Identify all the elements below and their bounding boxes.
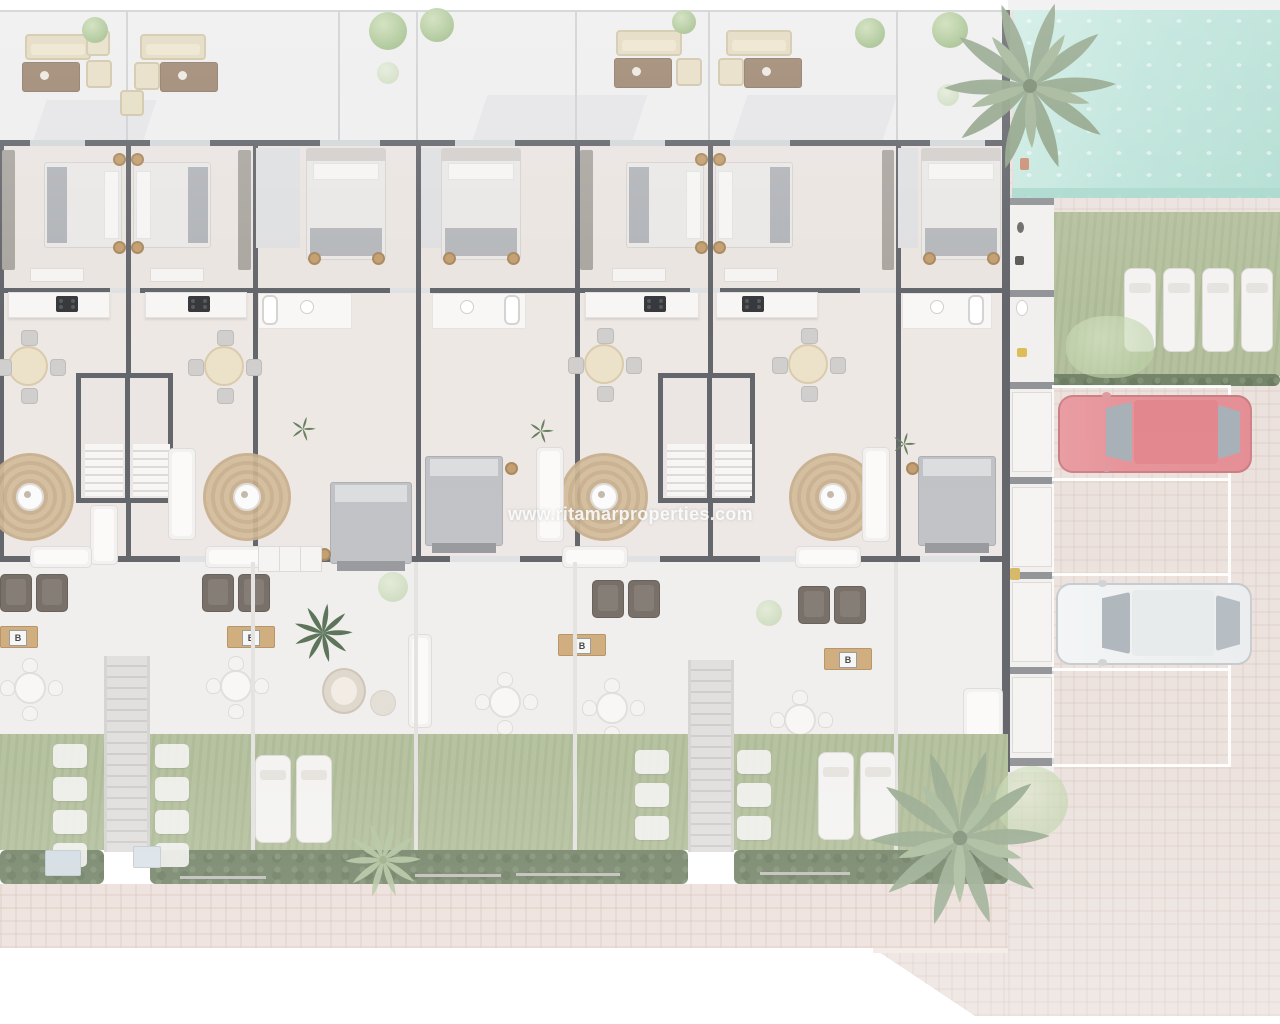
car-rear-window: [1216, 595, 1240, 651]
patio-chair: [48, 680, 63, 696]
pavement-corner: [873, 948, 1008, 1016]
garden-toy: [1017, 348, 1027, 357]
patio-chair: [228, 656, 244, 671]
guest-bed: [918, 456, 996, 546]
car-mirror: [1098, 580, 1107, 587]
bedside-stool: [113, 153, 126, 166]
dining-table: [584, 344, 624, 384]
bottom-margin: [0, 948, 873, 1024]
patio-dining-table: [489, 686, 521, 718]
bedside-stool: [131, 153, 144, 166]
bathtub: [262, 295, 278, 325]
terrace-coffee-table: [744, 58, 802, 88]
bbq-label: B: [845, 655, 852, 665]
palm-tree: [940, 0, 1120, 176]
parking-line: [1052, 385, 1228, 388]
stepping-stone: [53, 744, 87, 768]
terrace-divider: [708, 12, 710, 140]
bedside-stool: [131, 241, 144, 254]
bathroom-sink: [460, 300, 474, 314]
walkway-divider: [1008, 198, 1054, 205]
outdoor-armchair: [36, 574, 68, 612]
stair-treads: [85, 444, 123, 496]
bedside-stool: [987, 252, 1000, 265]
outdoor-armchair: [798, 586, 830, 624]
stepping-stone: [155, 744, 189, 768]
window: [610, 140, 665, 146]
parking-line: [1052, 764, 1228, 767]
window: [455, 140, 515, 146]
kitchen-counter: [716, 292, 818, 318]
terrace-divider: [416, 12, 418, 140]
door-gap: [860, 288, 900, 293]
patio-chair: [254, 678, 269, 694]
dining-chair: [597, 328, 614, 344]
stair-treads: [715, 444, 752, 496]
car-rear-window: [1218, 405, 1240, 459]
bedroom-double-bed: [133, 162, 211, 248]
patio-chair: [604, 678, 620, 693]
staircase: [76, 373, 173, 503]
patio-chair: [22, 658, 38, 673]
dining-chair: [772, 357, 788, 374]
lawn-lounger: [1202, 268, 1234, 352]
bedside-stool: [713, 241, 726, 254]
patio-dining-table: [596, 692, 628, 724]
car-roof: [1134, 400, 1218, 464]
garden-stairs: [104, 656, 150, 852]
dining-chair: [568, 357, 584, 374]
bedside-stool: [113, 241, 126, 254]
outdoor-armchair: [0, 574, 32, 612]
sliding-door: [450, 556, 520, 562]
bbq-box: B: [839, 652, 857, 668]
patio-chair: [475, 694, 490, 710]
dining-chair: [0, 359, 12, 376]
door-gap: [390, 288, 430, 293]
terrace-tree: [672, 10, 696, 34]
side-object: [1015, 256, 1024, 265]
patio-dining-table: [220, 670, 252, 702]
bedroom-double-bed: [441, 148, 521, 260]
bedside-stool: [713, 153, 726, 166]
patio-chair: [0, 680, 15, 696]
dining-chair: [830, 357, 846, 374]
sofa: [168, 448, 196, 540]
parking-line: [1052, 385, 1054, 767]
bedside-stool: [695, 241, 708, 254]
wardrobe: [580, 150, 593, 270]
bedside-stool: [308, 252, 321, 265]
footpath: [0, 884, 1008, 953]
parking-line: [1052, 573, 1228, 576]
sun-lounger: [818, 752, 854, 840]
lawn-bush: [1066, 316, 1154, 378]
terrace-armchair: [718, 58, 744, 86]
bathtub: [504, 295, 520, 325]
window-nook: [898, 148, 918, 248]
hanging-chair: [322, 668, 366, 714]
terrace-sofa: [25, 34, 91, 60]
palm-tree: [866, 744, 1054, 932]
dining-chair: [626, 357, 642, 374]
white-car: [1056, 583, 1252, 665]
patio-chair: [770, 712, 785, 728]
car-mirror: [1102, 465, 1111, 472]
stepping-stone: [737, 783, 771, 807]
lawn-lounger: [1163, 268, 1195, 352]
dining-chair: [188, 359, 204, 376]
bedside-stool: [695, 153, 708, 166]
outdoor-armchair: [202, 574, 234, 612]
parking-line: [1052, 478, 1228, 481]
staircase: [658, 373, 755, 503]
bedside-stool: [507, 252, 520, 265]
terrace-armchair: [120, 90, 144, 116]
sideboard: B: [558, 634, 606, 656]
pillow: [313, 163, 379, 180]
patio-palm-plant: [288, 598, 358, 668]
bbq-box: B: [9, 630, 27, 646]
patio-chair: [22, 706, 38, 721]
terrace-tree: [420, 8, 454, 42]
sideboard: B: [0, 626, 38, 648]
stepping-stone: [635, 816, 669, 840]
sofa: [30, 546, 92, 568]
window: [30, 140, 85, 146]
terrace-tree: [377, 62, 399, 84]
patio-chair: [497, 672, 513, 687]
dining-chair: [50, 359, 66, 376]
closet: [279, 546, 301, 572]
coffee-table: [819, 483, 847, 511]
bathtub: [968, 295, 984, 325]
terrace-coffee-table: [614, 58, 672, 88]
hall-plant: [890, 430, 918, 458]
walkway-divider: [1008, 290, 1054, 297]
stepping-stone: [635, 750, 669, 774]
patio-bush: [756, 600, 782, 626]
garden-toy: [1010, 568, 1020, 580]
garden-palm-bush: [338, 815, 428, 905]
sofa: [862, 447, 890, 542]
patio-chair: [228, 704, 244, 719]
stepping-stone: [53, 810, 87, 834]
bedside-stool: [505, 462, 518, 475]
terrace-armchair: [676, 58, 702, 86]
watermark: www.ritamarproperties.com: [508, 504, 753, 525]
cooktop: [56, 296, 78, 312]
dining-table: [788, 344, 828, 384]
terrace-sofa: [140, 34, 206, 60]
pillow: [448, 163, 514, 180]
window: [150, 140, 210, 146]
dining-chair: [217, 388, 234, 404]
ac-unit: [133, 846, 161, 868]
path-railing: [516, 873, 620, 876]
window-nook: [256, 148, 300, 248]
stair-divider: [125, 378, 130, 498]
coffee-table: [16, 483, 44, 511]
lawn-lounger: [1241, 268, 1273, 352]
stepping-stone: [155, 810, 189, 834]
wardrobe: [2, 150, 15, 270]
dresser: [30, 268, 84, 282]
bedside-stool: [443, 252, 456, 265]
shadow: [473, 95, 648, 140]
stair-treads: [133, 444, 170, 496]
sofa: [795, 546, 861, 568]
side-patio: [1012, 582, 1052, 662]
dining-table: [204, 346, 244, 386]
stair-divider: [707, 378, 712, 498]
stair-treads: [667, 444, 705, 496]
side-basin: [1016, 300, 1028, 316]
bathroom-sink: [300, 300, 314, 314]
terrace-sofa: [726, 30, 792, 56]
bedside-stool: [906, 462, 919, 475]
dining-chair: [801, 328, 818, 344]
garden-stairs: [688, 660, 734, 852]
stepping-stone: [53, 777, 87, 801]
terrace-armchair: [134, 62, 160, 90]
terrace-divider: [338, 12, 340, 140]
pool-waterline: [1012, 188, 1280, 198]
car-mirror: [1102, 392, 1111, 399]
terrace-armchair: [86, 60, 112, 88]
patio-chair: [818, 712, 833, 728]
sofa: [90, 505, 118, 565]
bbq-label: B: [579, 641, 586, 651]
kitchen-counter: [585, 292, 699, 318]
terrace-tree: [82, 17, 108, 43]
bedside-stool: [923, 252, 936, 265]
terrace-coffee-table: [22, 62, 80, 92]
patio-dining-table: [784, 704, 816, 736]
outdoor-armchair: [592, 580, 624, 618]
pouf: [370, 690, 396, 716]
walkway-divider: [1008, 667, 1054, 674]
sliding-door: [920, 556, 980, 562]
dining-chair: [246, 359, 262, 376]
terrace-tree: [369, 12, 407, 50]
walkway-divider: [1008, 477, 1054, 484]
bedroom-double-bed: [715, 162, 793, 248]
side-patio: [1012, 487, 1052, 567]
outdoor-sofa: [408, 634, 432, 728]
window: [320, 140, 380, 146]
patio-chair: [523, 694, 538, 710]
dresser: [150, 268, 204, 282]
path-railing: [760, 872, 850, 875]
dining-chair: [21, 330, 38, 346]
ac-unit: [45, 850, 81, 876]
stepping-stone: [737, 750, 771, 774]
dining-chair: [217, 330, 234, 346]
patio-dining-table: [14, 672, 46, 704]
terrace-coffee-table: [160, 62, 218, 92]
side-patio: [1012, 392, 1052, 472]
car-windshield: [1106, 402, 1132, 462]
hall-plant: [288, 414, 318, 444]
car-windshield: [1102, 592, 1130, 654]
stepping-stone: [155, 777, 189, 801]
sideboard: B: [824, 648, 872, 670]
stepping-stone: [737, 816, 771, 840]
sun-lounger: [255, 755, 291, 843]
sun-lounger: [296, 755, 332, 843]
bedroom-double-bed: [306, 148, 386, 260]
door-gap: [110, 288, 140, 293]
garden-lawn: [0, 734, 1008, 850]
garden-fence: [573, 562, 577, 884]
facade-top-line: [0, 10, 1008, 12]
stepping-stone: [635, 783, 669, 807]
outdoor-armchair: [834, 586, 866, 624]
guest-bed: [330, 482, 412, 564]
outdoor-shower: [1017, 222, 1024, 233]
bedroom-double-bed: [626, 162, 704, 248]
sofa: [536, 447, 564, 542]
patio-chair: [582, 700, 597, 716]
walkway-divider: [1008, 382, 1054, 389]
sofa: [562, 546, 628, 568]
path-railing: [180, 876, 266, 879]
car-roof: [1132, 590, 1214, 656]
terrace-tree: [855, 18, 885, 48]
bedside-stool: [372, 252, 385, 265]
dining-chair: [21, 388, 38, 404]
dresser: [612, 268, 666, 282]
wardrobe: [238, 150, 251, 270]
patio-chair: [630, 700, 645, 716]
cooktop: [188, 296, 210, 312]
wardrobe: [882, 150, 894, 270]
outdoor-armchair: [628, 580, 660, 618]
car-mirror: [1098, 659, 1107, 666]
patio-bush: [378, 572, 408, 602]
dining-chair: [801, 386, 818, 402]
side-patio: [1012, 677, 1052, 753]
cooktop: [742, 296, 764, 312]
shadow: [733, 95, 898, 140]
hall-plant: [526, 416, 556, 446]
cooktop: [644, 296, 666, 312]
patio-chair: [792, 690, 808, 705]
parking-line: [1052, 668, 1228, 671]
bathroom-sink: [930, 300, 944, 314]
window-nook: [421, 148, 441, 248]
patio-chair: [497, 720, 513, 735]
guest-bed: [425, 456, 503, 546]
window: [730, 140, 790, 146]
floor-plan-render: B B B B: [0, 0, 1280, 1024]
patio-chair: [206, 678, 221, 694]
dining-chair: [597, 386, 614, 402]
terrace-divider: [896, 12, 898, 140]
red-car: [1058, 395, 1252, 473]
dresser: [724, 268, 778, 282]
terrace-sofa: [616, 30, 682, 56]
bedroom-double-bed: [44, 162, 122, 248]
bbq-label: B: [15, 633, 22, 643]
dining-table: [8, 346, 48, 386]
coffee-table: [233, 483, 261, 511]
